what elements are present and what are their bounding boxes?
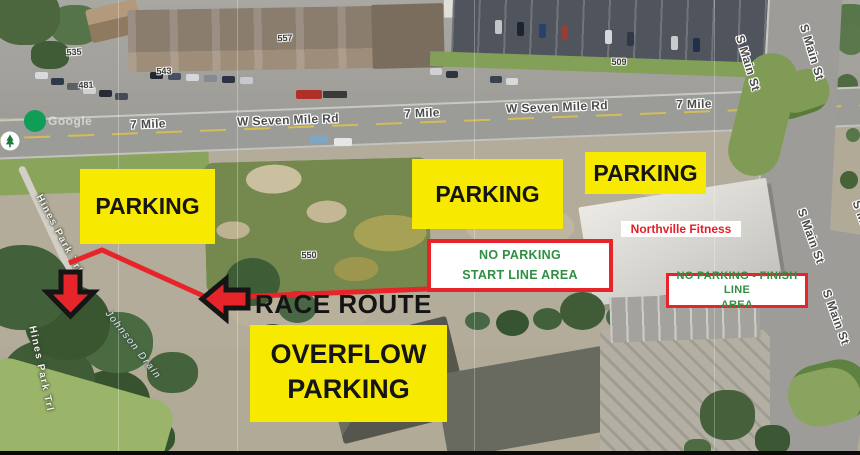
race-parking-map: 7 Mile W Seven Mile Rd 7 Mile W Seven Mi…: [0, 0, 860, 455]
no-parking-start-line2: START LINE AREA: [462, 266, 578, 285]
aerial-strip-mall-building: [127, 6, 378, 72]
aerial-cars: [495, 20, 502, 34]
road-label-7-mile: 7 Mile: [130, 116, 166, 131]
overflow-parking-box: OVERFLOW PARKING: [250, 325, 447, 422]
building-number: 557: [277, 33, 293, 44]
no-parking-start-line-box: NO PARKING START LINE AREA: [427, 239, 613, 292]
aerial-building: [434, 346, 616, 455]
no-parking-finish-line2: AREA: [721, 298, 753, 312]
no-parking-finish-line1: NO PARKING - FINISH LINE: [669, 269, 805, 298]
parking-box-center: PARKING: [412, 159, 563, 229]
aerial-cars: [35, 72, 48, 79]
building-number: 550: [301, 250, 316, 261]
building-number: 481: [78, 80, 94, 91]
aerial-stone-yard: [600, 330, 770, 455]
race-route-label: RACE ROUTE: [255, 289, 432, 320]
northville-fitness-banner: Northville Fitness: [621, 221, 741, 237]
overflow-parking-line2: PARKING: [287, 372, 410, 407]
aerial-cars: [430, 68, 442, 75]
aerial-road-vehicles: [310, 135, 328, 143]
no-parking-start-line1: NO PARKING: [479, 246, 561, 265]
google-watermark: Google: [48, 114, 92, 128]
building-number: 543: [156, 66, 172, 77]
building-number: 509: [611, 57, 626, 67]
aerial-red-truck: [296, 90, 322, 99]
road-label-7-mile: 7 Mile: [404, 105, 440, 120]
aerial-trees: [560, 292, 605, 330]
road-label-7-mile: 7 Mile: [676, 97, 712, 112]
green-dot-marker: [24, 110, 46, 132]
parking-box-west: PARKING: [80, 169, 215, 244]
no-parking-finish-line-box: NO PARKING - FINISH LINE AREA: [666, 273, 808, 308]
bottom-black-bar: [0, 451, 860, 455]
aerial-trees: [700, 390, 755, 440]
overflow-parking-line1: OVERFLOW: [271, 337, 427, 372]
park-icon: [0, 131, 20, 151]
building-number: 535: [66, 46, 82, 57]
map-grid-line: [237, 0, 238, 455]
parking-box-east: PARKING: [585, 152, 706, 194]
